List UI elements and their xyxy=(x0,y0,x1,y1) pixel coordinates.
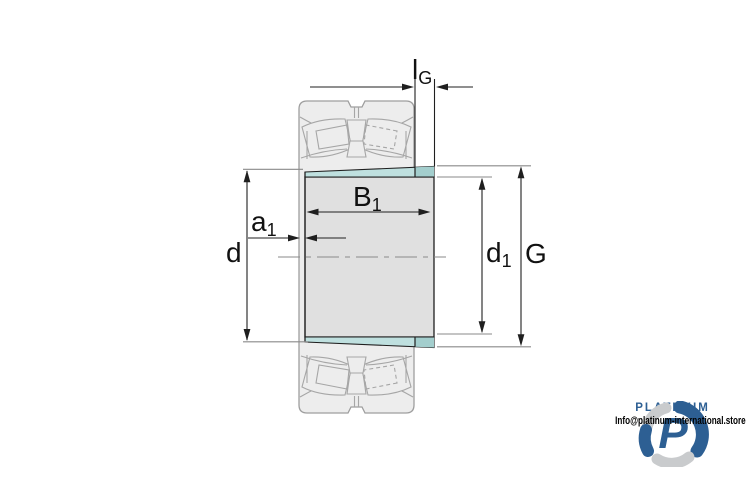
thread-section-bottom xyxy=(415,338,434,348)
g-extension-lines xyxy=(437,166,531,347)
g-base: G xyxy=(525,238,547,269)
dim-label-d: d xyxy=(226,239,242,270)
d1-base: d xyxy=(486,237,502,268)
b1-sub: 1 xyxy=(372,195,382,215)
d1-arrow-bottom xyxy=(479,321,486,333)
d-base: d xyxy=(226,237,242,268)
dim-label-lg: lG xyxy=(412,56,432,87)
thread-section-top xyxy=(415,167,434,177)
a1-sub: 1 xyxy=(267,220,277,240)
d1-extension-lines xyxy=(437,177,492,334)
brand-email: Info@platinum-international.store xyxy=(615,415,730,427)
lg-arrow-right xyxy=(436,84,448,91)
drawing-canvas: lG B1 a1 d d1 G P PLATINUM Info@platinum… xyxy=(0,0,750,500)
d-arrow-top xyxy=(244,170,251,182)
lg-extension-lines xyxy=(415,79,435,167)
brand-logo: P PLATINUM Info@platinum-international.s… xyxy=(595,401,750,427)
a1-base: a xyxy=(251,206,267,237)
a1-arrow-left xyxy=(288,235,300,242)
inner-ring-center-flange xyxy=(347,141,366,157)
d1-arrow-top xyxy=(479,178,486,190)
b1-base: B xyxy=(353,181,372,212)
dim-label-g: G xyxy=(525,240,547,271)
dimension-g xyxy=(437,166,531,347)
d1-sub: 1 xyxy=(502,251,512,271)
d-arrow-bottom xyxy=(244,329,251,341)
dimension-d1 xyxy=(437,177,492,334)
dim-label-d1: d1 xyxy=(486,239,512,270)
d-extension-lines xyxy=(243,169,308,341)
g-arrow-bottom xyxy=(518,334,525,346)
dimension-d xyxy=(243,169,308,341)
dim-label-a1: a1 xyxy=(251,208,277,239)
lg-sub: G xyxy=(418,68,432,88)
swirl-petal-blue-left xyxy=(645,430,648,451)
g-arrow-top xyxy=(518,166,525,178)
platinum-logo-icon: P xyxy=(595,401,750,467)
dim-label-b1: B1 xyxy=(353,183,382,214)
